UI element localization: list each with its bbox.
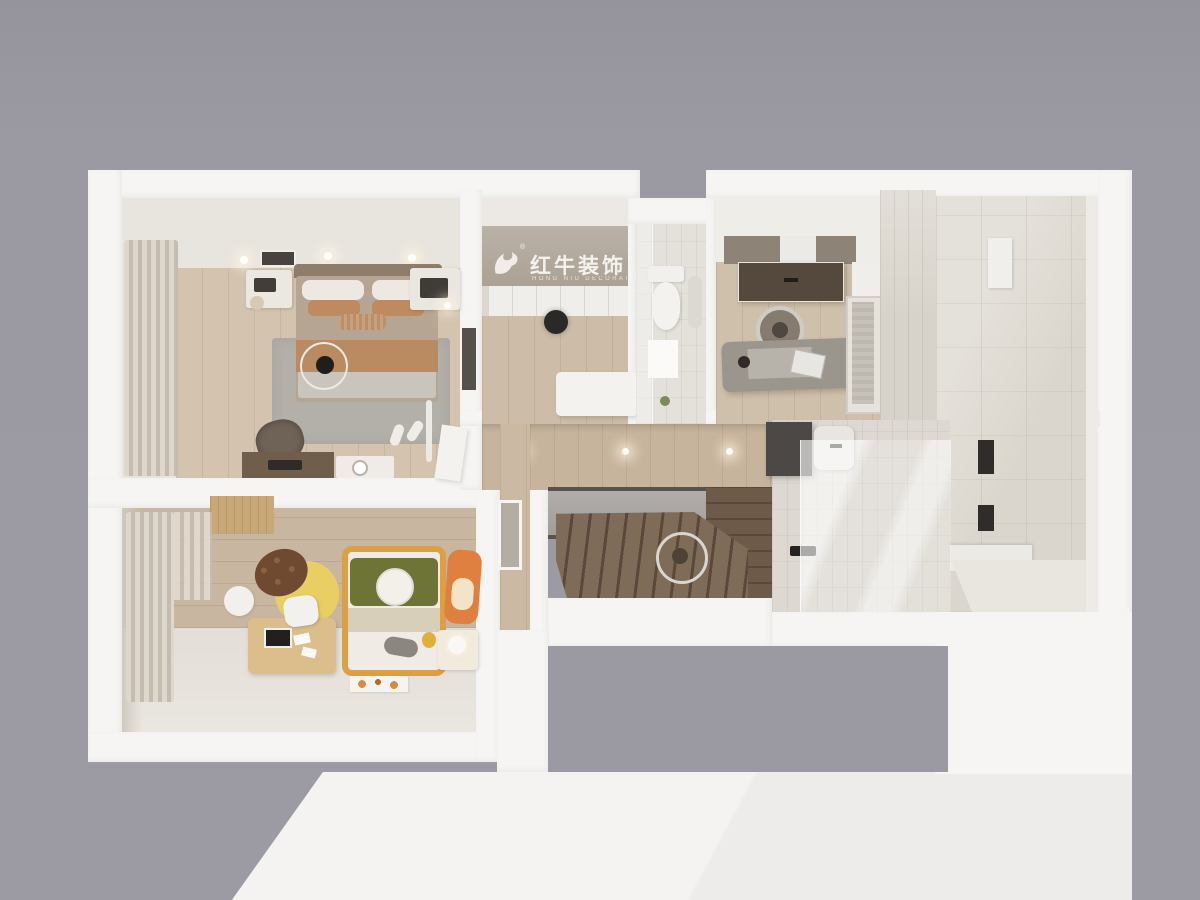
shower-floor: [936, 560, 1086, 612]
shower-shelf: [988, 238, 1012, 288]
wall-wc-top: [628, 198, 718, 224]
render-background: ® 红牛装饰 HONG NIU DECORATION: [0, 0, 1200, 900]
shower-column: [978, 440, 994, 474]
bath-mat: [648, 340, 678, 378]
kids-chair: [282, 594, 320, 628]
toilet-bowl: [652, 282, 680, 330]
toilet-tank: [648, 266, 684, 282]
floor-edge-below-bathroom: [772, 612, 952, 648]
counter-handle: [784, 278, 798, 282]
fox-belly: [450, 577, 474, 610]
roller-blind: [852, 302, 874, 404]
glass-bathroom: [772, 420, 950, 614]
kids-door-frame: [498, 500, 522, 570]
round-chair-center: [772, 322, 788, 338]
toy-duck: [422, 632, 436, 648]
upper-cabinet-taupe: [816, 236, 856, 264]
hall-counter: [556, 372, 638, 416]
brand-subtitle: HONG NIU DECORATION: [532, 276, 649, 282]
master-bedroom: [122, 198, 460, 478]
shower-room-right-wall: [1086, 196, 1098, 612]
kids-floor-mat: [350, 676, 408, 692]
right-section-base: [935, 612, 1132, 774]
kids-curtain: [126, 512, 174, 702]
pendant-light: [544, 310, 568, 334]
floor-edge-corner: [497, 630, 549, 772]
foreground-floor-slab: [230, 772, 1132, 900]
study-window: [846, 296, 884, 414]
ball-lamp: [250, 296, 264, 310]
nightstand-tray: [254, 278, 276, 292]
fox-cushion: [443, 549, 482, 625]
closet-hall: [482, 198, 628, 424]
upper-cabinet-taupe: [724, 236, 780, 264]
round-floor-mat: [224, 586, 254, 616]
teapot: [738, 356, 750, 368]
kids-round-pillow: [376, 568, 414, 606]
shower-room: [936, 196, 1086, 612]
wall-wc-right: [706, 198, 716, 424]
wc-fixture: [688, 276, 702, 328]
ceiling-light-2: [324, 252, 332, 260]
pillow: [302, 280, 364, 300]
tall-cabinet: [852, 262, 880, 298]
upper-cabinet-white: [780, 236, 816, 264]
kids-blanket-beige: [348, 608, 440, 632]
void-gap: [548, 646, 948, 772]
kids-bedroom: [122, 508, 476, 732]
plush-toy: [383, 635, 420, 659]
study-room: [716, 198, 880, 424]
hallway-light-2: [622, 448, 629, 455]
wall-left: [88, 170, 122, 762]
handrail-post-cap: [672, 548, 688, 564]
wc-glass-panel: [636, 224, 653, 424]
kids-ball-lamp: [448, 636, 466, 654]
ceiling-light-3: [408, 254, 416, 262]
keyboard: [268, 460, 302, 470]
flush-ceiling-light: [260, 250, 296, 267]
wc-room: [636, 224, 706, 424]
kids-bed: [342, 546, 446, 676]
tiled-divider-wall: [880, 190, 936, 422]
decor-ring-center: [316, 356, 334, 374]
kids-wardrobe-top: [210, 496, 274, 534]
bedroom-curtain: [124, 240, 178, 476]
bedside-lamp: [444, 302, 451, 309]
stairwell: [548, 487, 772, 600]
ceiling-light-1: [240, 256, 248, 264]
nightstand-box: [420, 278, 448, 298]
shower-glass-sheen: [800, 440, 951, 614]
wall-kids-bottom: [88, 732, 512, 762]
hallway-light-3: [726, 448, 733, 455]
plant: [660, 396, 670, 406]
hall-ceiling: [482, 198, 628, 226]
kids-desk-screen: [264, 628, 292, 648]
wall-top-left: [88, 170, 640, 198]
registered-mark: ®: [520, 244, 525, 251]
wall-tv-panel: [462, 328, 476, 390]
dark-counter: [738, 262, 844, 302]
floor-lamp: [426, 400, 432, 462]
kids-curtain-sheer: [174, 512, 212, 600]
brand-watermark: ® 红牛装饰 HONG NIU DECORATION: [492, 244, 638, 288]
lumbar-pillow: [338, 314, 386, 330]
bull-icon: [492, 248, 522, 278]
floor-edge-below-stairs: [548, 598, 772, 648]
shower-column: [978, 505, 994, 531]
radiator-dial: [352, 460, 368, 476]
